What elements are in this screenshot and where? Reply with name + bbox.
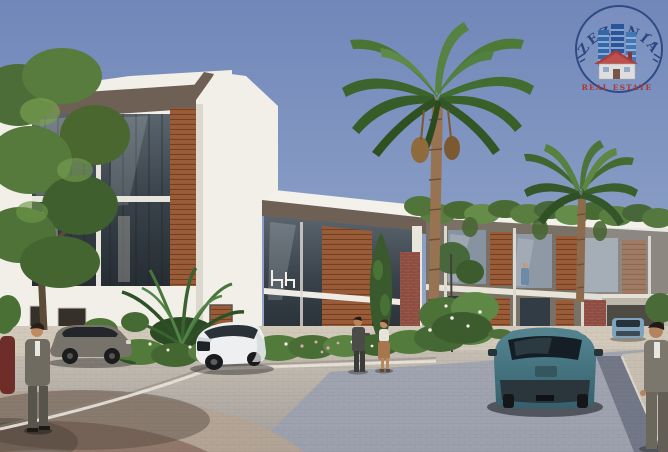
distant-tree [456,260,484,284]
side-mirror [594,349,603,356]
teal-suv-rear [487,328,603,418]
tan-skirt [378,341,390,360]
trouser-leg [646,392,657,449]
shoe [39,426,50,430]
unit-wood [556,236,578,290]
trouser-leg [28,386,37,429]
unit-wood [490,232,512,286]
exhaust [536,395,554,401]
curtain [118,216,130,282]
car-shadow [48,358,136,368]
white-top [379,329,389,342]
rendering-scene: ZEZENIA REAL ESTATE [0,0,668,452]
hand [640,390,646,396]
watermark-logo: ZEZENIA REAL ESTATE [575,6,662,92]
trouser-leg [39,386,48,427]
shoe [27,428,38,432]
mullion-vertical [300,222,303,344]
license-area [535,366,557,377]
shirt [35,341,40,356]
car-grille [197,341,210,351]
distant-blue-car [610,318,646,342]
scene-canvas: ZEZENIA REAL ESTATE [0,0,668,452]
wood-slat-panel [170,108,196,286]
partial-figure-maroon [0,298,16,394]
logo-tagline-text: REAL ESTATE [582,83,653,92]
trouser-leg [658,392,668,452]
car-windshield [616,320,640,327]
shirt [654,342,660,358]
car-shadow [190,363,274,375]
wheel [577,394,588,408]
side-mirror [488,349,497,356]
headlight [126,340,131,344]
car-grille [616,331,640,336]
wheel [503,394,514,408]
unit-separator [513,228,516,336]
